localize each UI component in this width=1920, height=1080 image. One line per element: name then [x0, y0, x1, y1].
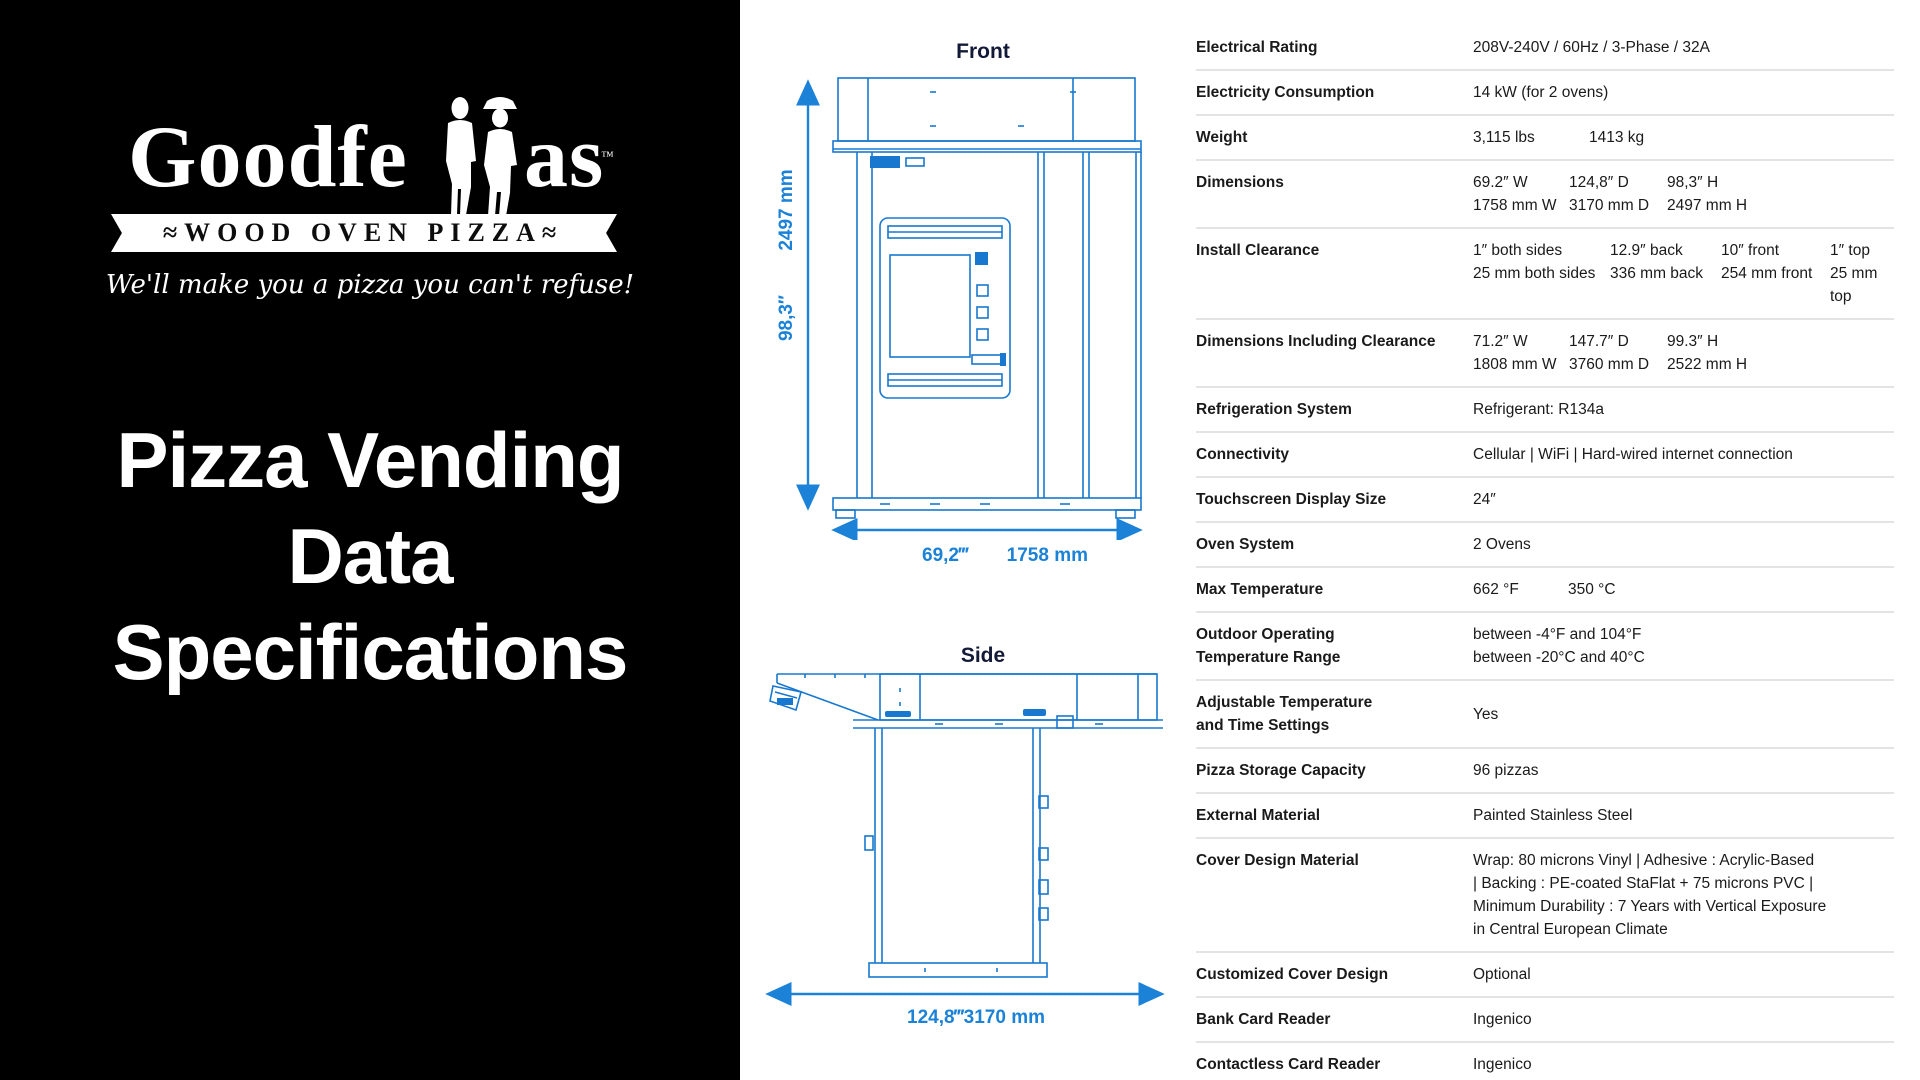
spec-label: Outdoor Operating Temperature Range: [1196, 623, 1473, 669]
spec-label: External Material: [1196, 804, 1473, 827]
spec-label: Pizza Storage Capacity: [1196, 759, 1473, 782]
spec-label: Dimensions: [1196, 171, 1473, 217]
spec-value: Ingenico: [1473, 1008, 1894, 1031]
spec-value: Yes: [1473, 703, 1894, 726]
dimc-h-in: 99.3″ H: [1667, 330, 1894, 353]
clr-sides-in: 1″ both sides: [1473, 239, 1610, 262]
table-row: External Material Painted Stainless Stee…: [1196, 794, 1894, 839]
spec-value: 14 kW (for 2 ovens): [1473, 81, 1894, 104]
brand-text-right: as: [524, 103, 604, 213]
spec-label: Connectivity: [1196, 443, 1473, 466]
max-temp-c: 350 °C: [1568, 578, 1894, 601]
table-row: Refrigeration System Refrigerant: R134a: [1196, 388, 1894, 433]
spec-value: 2 Ovens: [1473, 533, 1894, 556]
table-row: Contactless Card Reader Ingenico: [1196, 1043, 1894, 1080]
page-title-line2: Data: [0, 508, 740, 604]
side-depth-in: 124,8‴: [907, 1007, 964, 1029]
spec-label: Contactless Card Reader: [1196, 1053, 1473, 1076]
trademark-symbol: ™: [601, 148, 614, 164]
side-view-drawing: [765, 668, 1165, 1018]
goodfellas-logo: Goodfe as ™ ≈WOOD OVEN PIZZA≈ We'll make…: [0, 0, 740, 330]
dim-d-in: 124,8″ D: [1569, 171, 1667, 194]
dim-w-mm: 1758 mm W: [1473, 194, 1569, 217]
front-width-mm: 1758 mm: [1007, 545, 1088, 567]
table-row: Dimensions Including Clearance 71.2″ W 1…: [1196, 320, 1894, 388]
dimc-h-mm: 2522 mm H: [1667, 353, 1894, 376]
spec-value: Refrigerant: R134a: [1473, 398, 1894, 421]
table-row: Dimensions 69.2″ W 124,8″ D 98,3″ H 1758…: [1196, 161, 1894, 229]
table-row: Install Clearance 1″ both sides 12.9″ ba…: [1196, 229, 1894, 320]
table-row: Touchscreen Display Size 24″: [1196, 478, 1894, 523]
side-view-title: Side: [898, 644, 1068, 668]
spec-value: 3,115 lbs 1413 kg: [1473, 126, 1894, 149]
table-row: Max Temperature 662 °F 350 °C: [1196, 568, 1894, 613]
page-title-line1: Pizza Vending: [0, 412, 740, 508]
table-row: Cover Design Material Wrap: 80 microns V…: [1196, 839, 1894, 953]
front-width-in: 69,2‴: [922, 545, 968, 567]
table-row: Electricity Consumption 14 kW (for 2 ove…: [1196, 71, 1894, 116]
table-row: Oven System 2 Ovens: [1196, 523, 1894, 568]
clr-front-in: 10″ front: [1721, 239, 1830, 262]
table-row: Bank Card Reader Ingenico: [1196, 998, 1894, 1043]
dim-d-mm: 3170 mm D: [1569, 194, 1667, 217]
front-height-mm-label: 2497 mm: [776, 150, 800, 270]
dimc-d-in: 147.7″ D: [1569, 330, 1667, 353]
clr-sides-mm: 25 mm both sides: [1473, 262, 1610, 308]
front-width-label: 69,2‴ 1758 mm: [922, 545, 1088, 567]
ribbon-text: ≈WOOD OVEN PIZZA≈: [163, 218, 563, 248]
clr-back-in: 12.9″ back: [1610, 239, 1721, 262]
spec-label: Touchscreen Display Size: [1196, 488, 1473, 511]
spec-value: 24″: [1473, 488, 1894, 511]
spec-label: Adjustable Temperature and Time Settings: [1196, 691, 1473, 737]
dim-w-in: 69.2″ W: [1473, 171, 1569, 194]
table-row: Pizza Storage Capacity 96 pizzas: [1196, 749, 1894, 794]
wood-oven-pizza-ribbon: ≈WOOD OVEN PIZZA≈: [134, 214, 592, 252]
side-depth-label: 124,8‴ 3170 mm: [907, 1007, 1031, 1029]
dimc-w-in: 71.2″ W: [1473, 330, 1569, 353]
spec-label: Electricity Consumption: [1196, 81, 1473, 104]
dim-h-in: 98,3″ H: [1667, 171, 1894, 194]
spec-value: 71.2″ W 147.7″ D 99.3″ H 1808 mm W 3760 …: [1473, 330, 1894, 376]
table-row: Adjustable Temperature and Time Settings…: [1196, 681, 1894, 749]
spec-value: 1″ both sides 12.9″ back 10″ front 1″ to…: [1473, 239, 1894, 308]
table-row: Electrical Rating 208V-240V / 60Hz / 3-P…: [1196, 26, 1894, 71]
brand-text-left: Goodfe: [128, 103, 408, 213]
table-row: Connectivity Cellular | WiFi | Hard-wire…: [1196, 433, 1894, 478]
page-title: Pizza Vending Data Specifications: [0, 412, 740, 700]
spec-label: Oven System: [1196, 533, 1473, 556]
clr-front-mm: 254 mm front: [1721, 262, 1830, 308]
front-height-in-label: 98,3″: [776, 258, 800, 378]
spec-label: Refrigeration System: [1196, 398, 1473, 421]
clr-top-mm: 25 mm top: [1830, 262, 1894, 308]
max-temp-f: 662 °F: [1473, 578, 1568, 601]
clr-back-mm: 336 mm back: [1610, 262, 1721, 308]
page-title-line3: Specifications: [0, 604, 740, 700]
dimc-w-mm: 1808 mm W: [1473, 353, 1569, 376]
table-row: Outdoor Operating Temperature Range betw…: [1196, 613, 1894, 681]
front-view-drawing: [770, 70, 1150, 540]
spec-label: Install Clearance: [1196, 239, 1473, 308]
spec-label: Cover Design Material: [1196, 849, 1473, 941]
weight-kg: 1413 kg: [1589, 126, 1894, 149]
spec-value: 69.2″ W 124,8″ D 98,3″ H 1758 mm W 3170 …: [1473, 171, 1894, 217]
spec-label: Max Temperature: [1196, 578, 1473, 601]
ribbon-tail-right: [591, 214, 617, 252]
spec-value: Wrap: 80 microns Vinyl | Adhesive : Acry…: [1473, 849, 1894, 941]
dim-h-mm: 2497 mm H: [1667, 194, 1894, 217]
left-brand-panel: Goodfe as ™ ≈WOOD OVEN PIZZA≈ We'll make…: [0, 0, 740, 1080]
clr-top-in: 1″ top: [1830, 239, 1894, 262]
spec-value: Optional: [1473, 963, 1894, 986]
spec-value: Cellular | WiFi | Hard-wired internet co…: [1473, 443, 1894, 466]
spec-table: Electrical Rating 208V-240V / 60Hz / 3-P…: [1196, 26, 1894, 1080]
spec-value: between -4°F and 104°F between -20°C and…: [1473, 623, 1894, 669]
spec-value: Ingenico: [1473, 1053, 1894, 1076]
spec-label: Weight: [1196, 126, 1473, 149]
spec-label: Dimensions Including Clearance: [1196, 330, 1473, 376]
dimc-d-mm: 3760 mm D: [1569, 353, 1667, 376]
spec-label: Bank Card Reader: [1196, 1008, 1473, 1031]
front-view-title: Front: [898, 40, 1068, 64]
spec-value: 96 pizzas: [1473, 759, 1894, 782]
spec-value: 208V-240V / 60Hz / 3-Phase / 32A: [1473, 36, 1894, 59]
table-row: Customized Cover Design Optional: [1196, 953, 1894, 998]
goodfellas-figures-icon: [438, 94, 522, 218]
weight-lbs: 3,115 lbs: [1473, 126, 1589, 149]
side-depth-mm: 3170 mm: [964, 1007, 1045, 1029]
spec-label: Electrical Rating: [1196, 36, 1473, 59]
spec-value: 662 °F 350 °C: [1473, 578, 1894, 601]
spec-value: Painted Stainless Steel: [1473, 804, 1894, 827]
brand-tagline: We'll make you a pizza you can't refuse!: [70, 270, 670, 300]
spec-label: Customized Cover Design: [1196, 963, 1473, 986]
spec-sheet-page: Goodfe as ™ ≈WOOD OVEN PIZZA≈ We'll make…: [0, 0, 1920, 1080]
table-row: Weight 3,115 lbs 1413 kg: [1196, 116, 1894, 161]
